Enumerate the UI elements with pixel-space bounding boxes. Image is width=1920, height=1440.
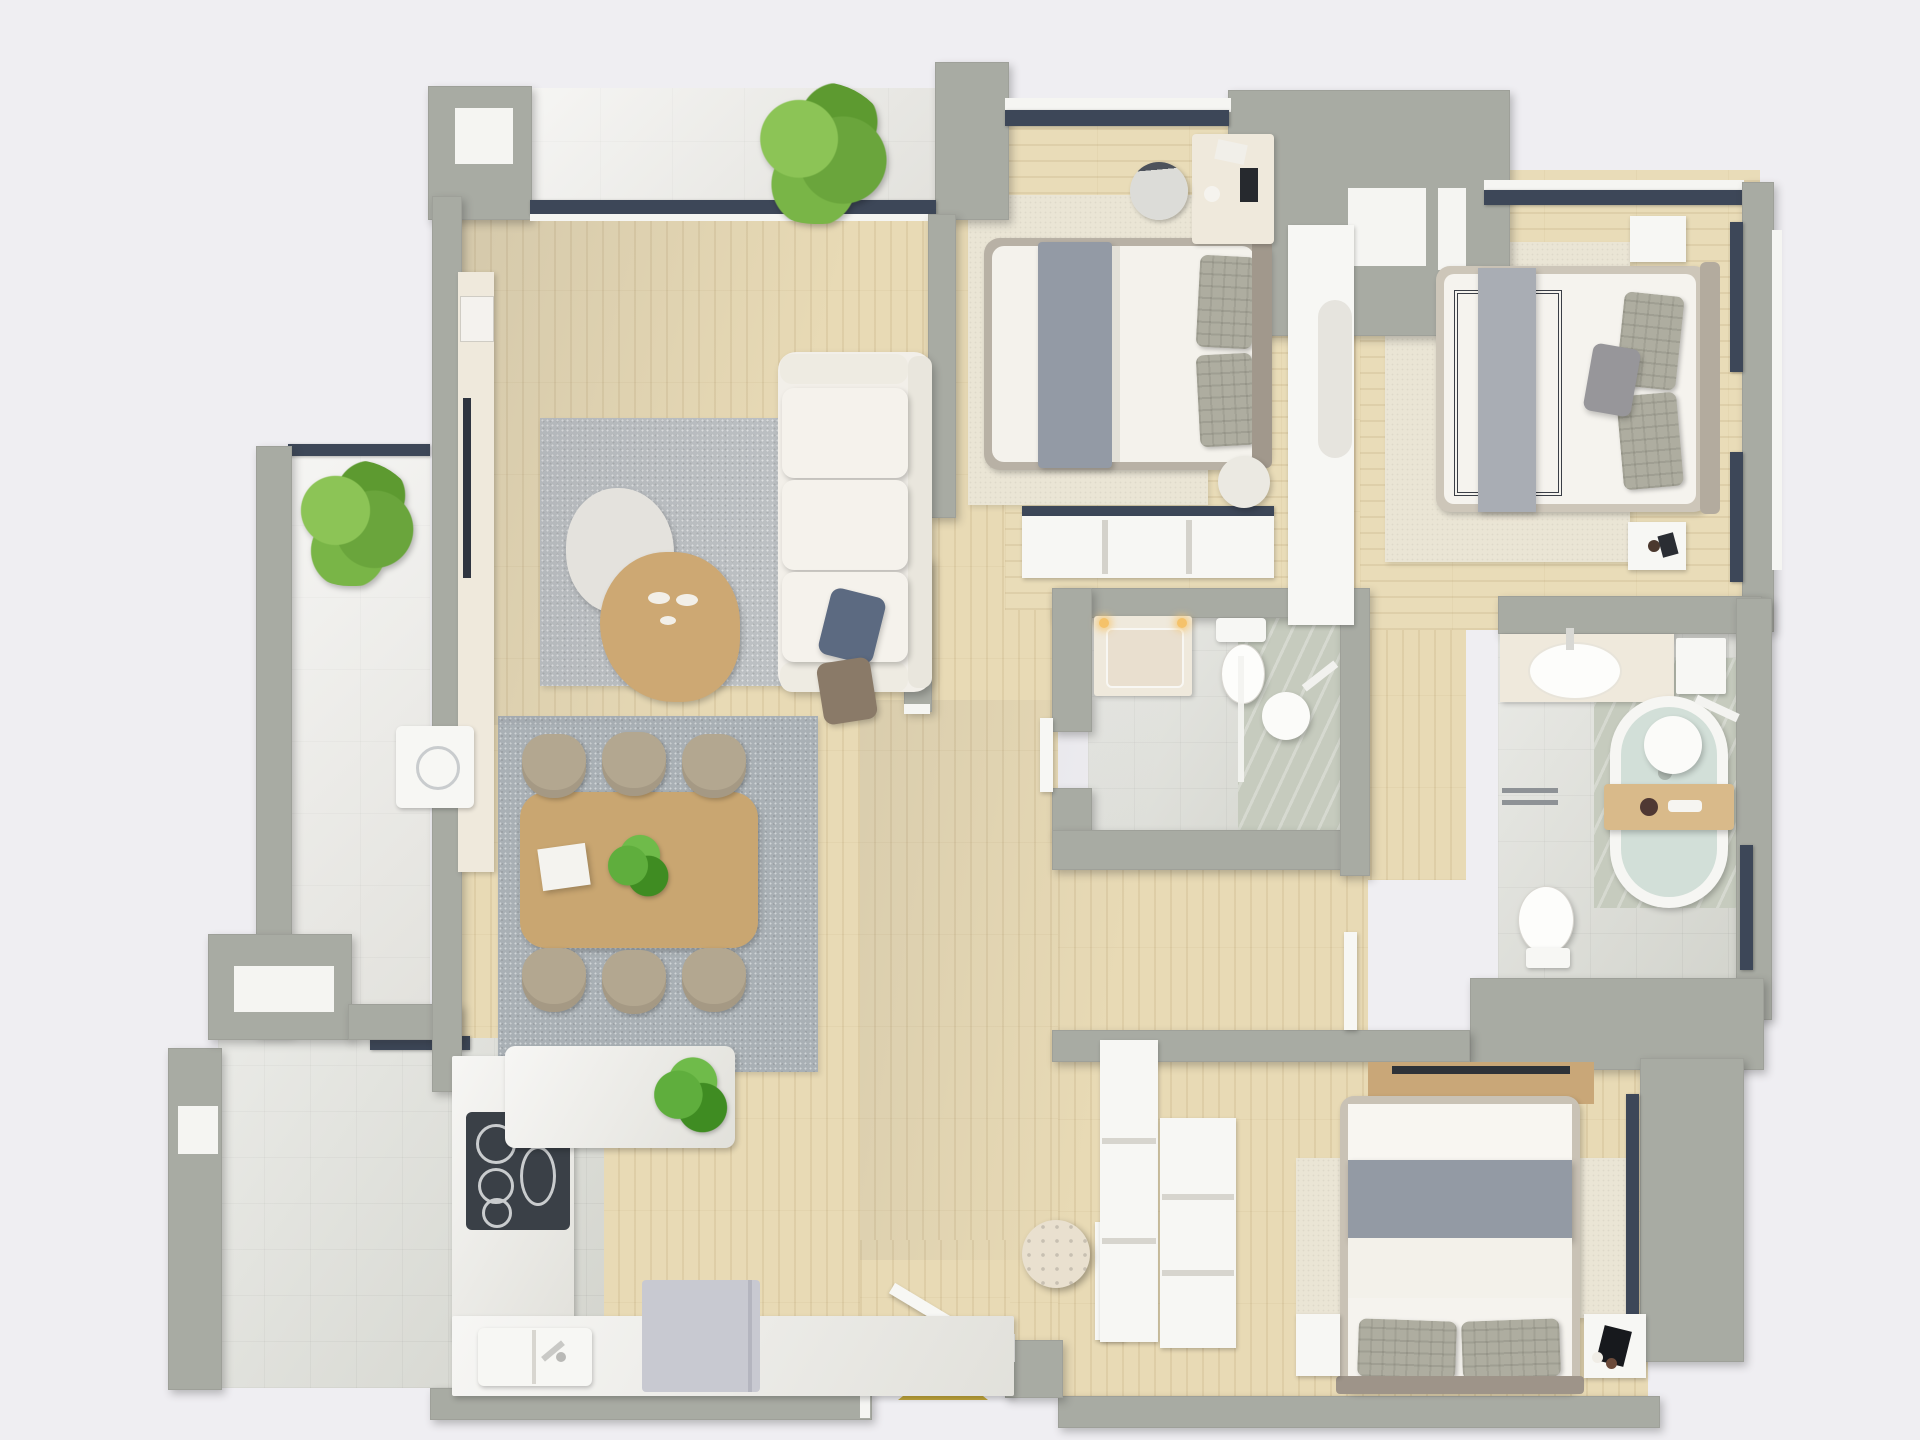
wall-bedroom-3-east (1640, 1058, 1744, 1362)
stool-master (1130, 162, 1188, 220)
cooktop-grill (520, 1146, 556, 1206)
nightstand-bed2-top (1630, 216, 1686, 262)
wall-kitchen-west (168, 1048, 222, 1390)
bed-master-headboard (1252, 238, 1272, 468)
cooktop-burner-3 (482, 1198, 512, 1228)
towel-rail-2 (1502, 800, 1558, 805)
bed-master-pillow-2 (1196, 353, 1257, 448)
sill-bedroom-2-east (1772, 230, 1782, 570)
dresser-phone (1240, 168, 1258, 202)
faucet-kitchen-base (556, 1352, 566, 1362)
window-bedroom-2-east-1 (1730, 222, 1743, 372)
plant-balcony-left (290, 460, 420, 586)
shower-glass-bathroom-1 (1238, 656, 1244, 782)
sofa-backrest (908, 356, 932, 688)
fridge-door-seam (748, 1280, 752, 1392)
wall-bedroom-3-south (1058, 1396, 1660, 1428)
bed-master-pillow-1 (1196, 255, 1257, 350)
toilet-1-tank (1216, 618, 1266, 642)
sink-bathroom-1 (1106, 628, 1184, 688)
washer-door (416, 746, 460, 790)
toilet-2-tank (1526, 948, 1570, 968)
wall-bathroom-1-east (1340, 588, 1370, 876)
shelving-bed3-column-a (1100, 1040, 1158, 1342)
bed-3-sheet-mid (1348, 1238, 1572, 1298)
egg-table-dish-1 (648, 592, 670, 604)
sofa-cushion-2 (782, 480, 908, 570)
dining-chair-2 (602, 732, 666, 796)
bed-3-pillow-2 (1461, 1318, 1561, 1379)
floor-hall-east (1058, 860, 1368, 1040)
dining-centerpiece-plant (596, 834, 676, 904)
bed-2-headboard (1700, 262, 1720, 514)
window-kitchen-west-slot (178, 1106, 218, 1154)
console-picture-frame (460, 296, 494, 342)
ottoman-round-tufted (1022, 1220, 1090, 1288)
wall-bedroom-2-south (1498, 596, 1762, 634)
ns3-cup-1 (1592, 1352, 1603, 1363)
side-table-master (1218, 456, 1270, 508)
door-bedroom-3 (1344, 932, 1357, 1030)
shower-head-bathroom-1 (1262, 692, 1310, 740)
toilet-2-bowl (1518, 886, 1574, 954)
niche-bathroom-2 (1676, 638, 1726, 694)
wall-bathroom-1-south (1052, 830, 1346, 870)
fridge (642, 1280, 760, 1392)
dining-chair-5 (602, 950, 666, 1014)
cap-hall-stub (904, 704, 930, 714)
dresser-dish (1204, 186, 1220, 202)
faucet-bathroom-2 (1566, 628, 1574, 650)
dining-chair-6 (682, 948, 746, 1012)
bed-3-sheet-top (1348, 1104, 1572, 1162)
wall-living-master-divider (928, 214, 956, 518)
window-bathroom-2-east (1740, 845, 1753, 970)
window-bedroom-3-east (1626, 1094, 1639, 1324)
plant-island-fern (640, 1056, 736, 1142)
wall-bedroom-2-east (1742, 182, 1774, 632)
bathtub-lamp (1644, 716, 1702, 774)
sill-balcony-top (530, 214, 936, 221)
sofa-cushion-1 (782, 388, 908, 478)
nightstand-bed3-left (1296, 1314, 1340, 1376)
window-balcony-block (455, 108, 513, 164)
shelf-a-divider-1 (1102, 1138, 1156, 1144)
dining-chair-4 (522, 948, 586, 1012)
shelf-b-divider-1 (1162, 1194, 1234, 1200)
wall-bathroom-1-west-lower (1052, 788, 1092, 836)
egg-table-dish-3 (660, 616, 676, 625)
lightwell-opening-1 (1348, 188, 1426, 266)
plant-balcony-top (748, 82, 894, 224)
window-bedroom-2-north (1484, 190, 1744, 205)
pillow-brown (815, 656, 878, 726)
door-bathroom-1 (1040, 718, 1053, 792)
dining-chair-3 (682, 734, 746, 798)
window-L-block-slot (234, 966, 334, 1012)
window-master-bedroom (1005, 110, 1229, 126)
window-balcony-left (288, 444, 430, 456)
caddy-soap (1668, 800, 1702, 812)
sofa-armrest-top (780, 354, 908, 384)
wardrobe-master-top-edge (1022, 506, 1274, 516)
window-bedroom-2-east-2 (1730, 452, 1743, 582)
shelving-bed3-column-b (1160, 1118, 1236, 1348)
wall-balcony-right (935, 62, 1009, 220)
vanity-light-1 (1099, 618, 1109, 628)
shelf-a-divider-2 (1102, 1238, 1156, 1244)
wall-bathroom-1-west-upper (1052, 588, 1092, 732)
lightwell-opening-2 (1438, 188, 1466, 270)
tv-bedroom-3 (1392, 1066, 1570, 1074)
vanity-light-2 (1177, 618, 1187, 628)
egg-table-dish-2 (676, 594, 698, 606)
sink-kitchen-divider (532, 1330, 536, 1384)
towel-rail-1 (1502, 788, 1558, 793)
wall-bathroom-2-south (1470, 978, 1764, 1070)
bed-3-headboard (1336, 1376, 1584, 1394)
window-balcony-top (530, 200, 936, 215)
dining-magazine (537, 843, 590, 891)
wardrobe-divider-1 (1102, 520, 1108, 574)
shelf-b-divider-2 (1162, 1270, 1234, 1276)
wardrobe-divider-2 (1186, 520, 1192, 574)
sink-bathroom-2 (1528, 642, 1622, 700)
closet-column-notch (1318, 300, 1352, 458)
caddy-cup (1640, 798, 1658, 816)
bed-3-pillow-1 (1357, 1318, 1457, 1379)
bed-3-throw (1348, 1160, 1572, 1240)
bed-2-throw (1478, 268, 1536, 512)
dining-chair-1 (522, 734, 586, 798)
floor-plan-canvas (0, 0, 1920, 1440)
bed-master-throw (1038, 242, 1112, 468)
bed-master-sheet-fold (1112, 246, 1120, 462)
tv-living (463, 398, 471, 578)
ns3-cup-2 (1606, 1358, 1617, 1369)
wardrobe-master-row (1022, 516, 1274, 578)
